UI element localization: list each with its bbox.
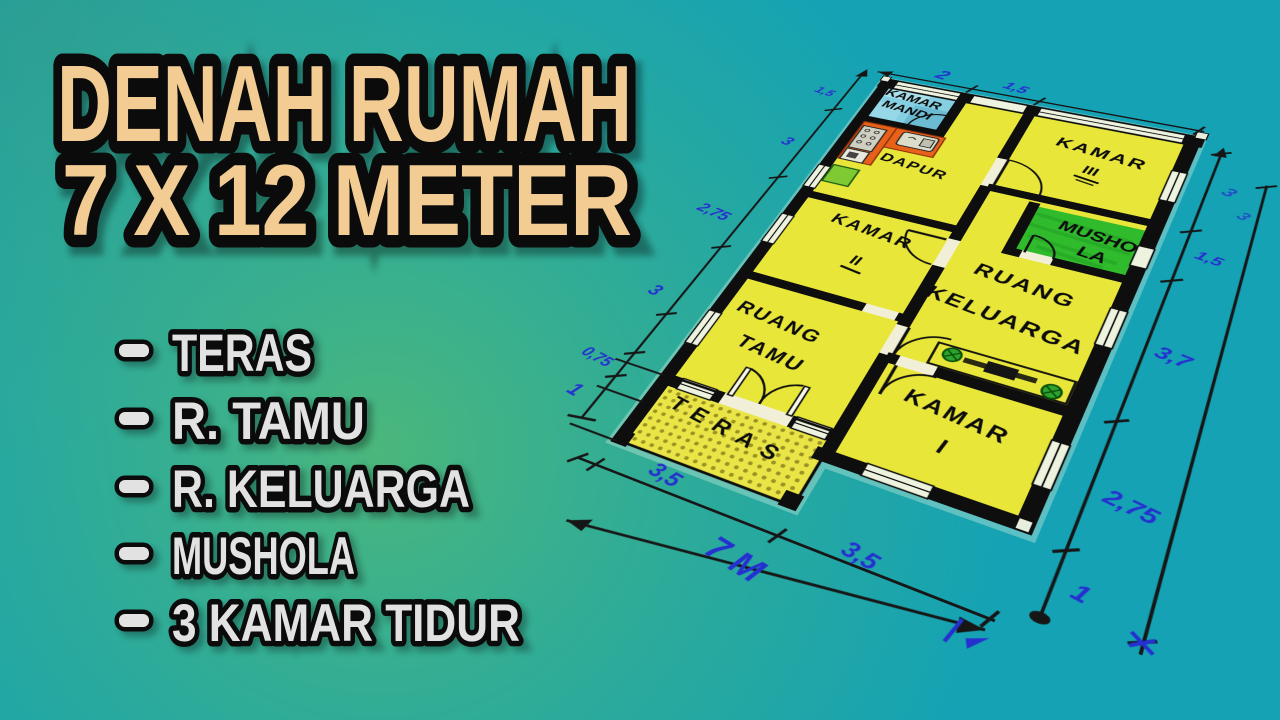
svg-text:MUSHOLA: MUSHOLA	[172, 527, 355, 586]
svg-text:3 KAMAR TIDUR: 3 KAMAR TIDUR	[172, 594, 520, 653]
svg-text:R. TAMU: R. TAMU	[172, 392, 365, 451]
svg-text:R. KELUARGA: R. KELUARGA	[172, 460, 470, 519]
svg-text:7 X 12 METER: 7 X 12 METER	[62, 145, 632, 257]
svg-text:TERAS: TERAS	[172, 324, 312, 383]
